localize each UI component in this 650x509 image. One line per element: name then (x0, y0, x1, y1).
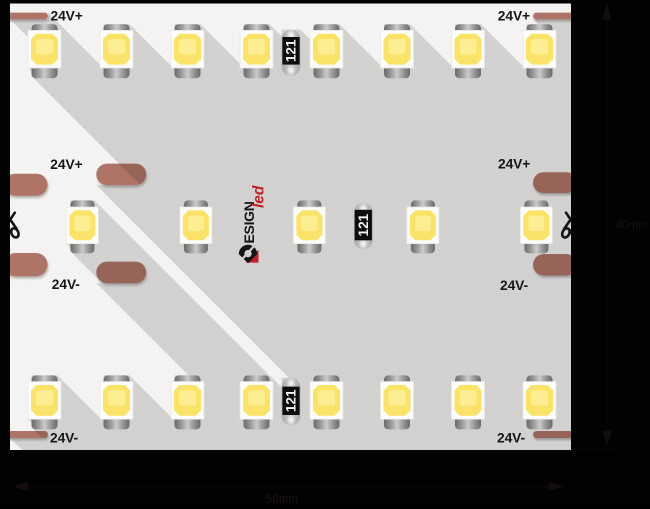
svg-text:24V-: 24V- (497, 431, 525, 446)
svg-text:121: 121 (356, 213, 371, 236)
svg-text:121: 121 (284, 389, 299, 412)
svg-text:24V+: 24V+ (498, 9, 530, 24)
svg-text:24V+: 24V+ (51, 9, 83, 24)
svg-text:24V+: 24V+ (498, 157, 530, 172)
svg-text:24V+: 24V+ (50, 157, 82, 172)
svg-text:led: led (251, 185, 268, 208)
svg-text:40mm: 40mm (616, 220, 648, 232)
svg-text:24V-: 24V- (52, 277, 80, 292)
svg-text:24V-: 24V- (50, 431, 78, 446)
svg-text:50mm: 50mm (266, 494, 298, 505)
svg-text:24V-: 24V- (500, 278, 528, 293)
svg-text:121: 121 (284, 39, 299, 62)
